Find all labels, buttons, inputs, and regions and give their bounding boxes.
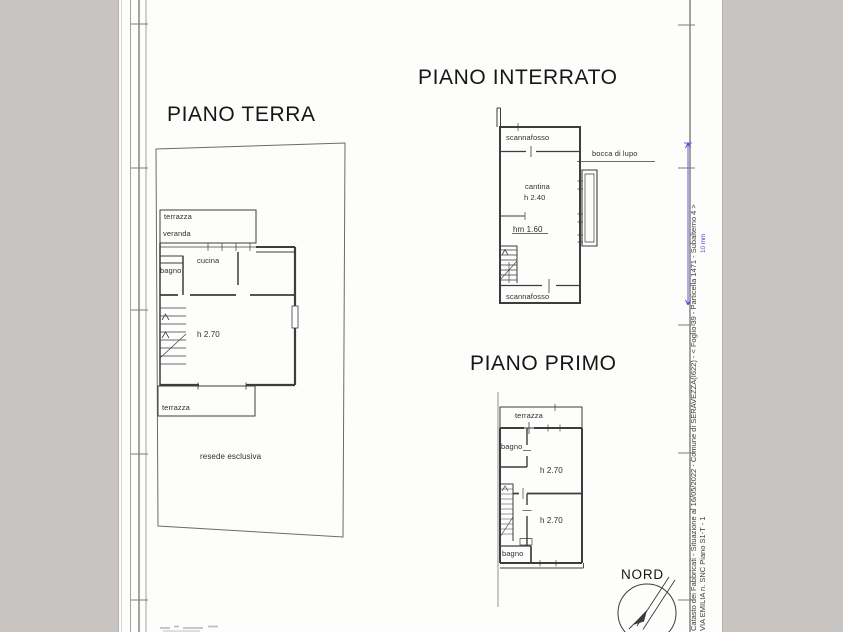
room-label-cantina: cantina <box>525 182 550 191</box>
north-label: NORD <box>621 567 664 582</box>
piano-primo-plan <box>498 392 584 607</box>
blue-dimension-label: 10 mm <box>700 234 707 253</box>
height-label-room2: h 2.70 <box>540 516 563 525</box>
room-label-bagno-terra: bagno <box>160 266 181 275</box>
north-compass <box>618 577 676 632</box>
label-resede-esclusiva: resede esclusiva <box>200 452 261 461</box>
margin-text-block: Catasto dei Fabbricati - Situazione al 1… <box>689 0 707 631</box>
room-label-scannafosso-top: scannafosso <box>506 133 549 142</box>
label-bocca-di-lupo: bocca di lupo <box>592 149 638 158</box>
page-frame <box>119 0 723 632</box>
height-label-terra: h 2.70 <box>197 330 220 339</box>
room-label-bagno-primo-top: bagno <box>501 442 522 451</box>
room-label-terrazza-top: terrazza <box>164 212 192 221</box>
scanned-cadastral-floorplan-page: PIANO TERRA PIANO INTERRATO PIANO PRIMO … <box>0 0 843 632</box>
room-label-veranda: veranda <box>163 229 191 238</box>
footer-cutoff-text-marks <box>160 627 218 632</box>
floorplan-linework <box>0 0 843 632</box>
piano-terra-plan <box>156 143 345 537</box>
height-label-cantina: h 2.40 <box>524 193 545 202</box>
address-reference-line: VIA EMILIA n. SNC Piano S1-T - 1 <box>698 0 707 631</box>
catasto-reference-line: Catasto dei Fabbricati - Situazione al 1… <box>689 0 698 631</box>
piano-interrato-title: PIANO INTERRATO <box>418 66 618 90</box>
piano-primo-title: PIANO PRIMO <box>470 352 617 376</box>
height-label-mezzanine: hm 1.60 <box>513 225 543 234</box>
room-label-scannafosso-bottom: scannafosso <box>506 292 549 301</box>
room-label-terrazza-primo: terrazza <box>515 411 543 420</box>
room-label-bagno-primo-bottom: bagno <box>502 549 523 558</box>
room-label-terrazza-bottom: terrazza <box>162 403 190 412</box>
piano-terra-title: PIANO TERRA <box>167 103 316 127</box>
room-label-cucina: cucina <box>197 256 219 265</box>
height-label-room1: h 2.70 <box>540 466 563 475</box>
